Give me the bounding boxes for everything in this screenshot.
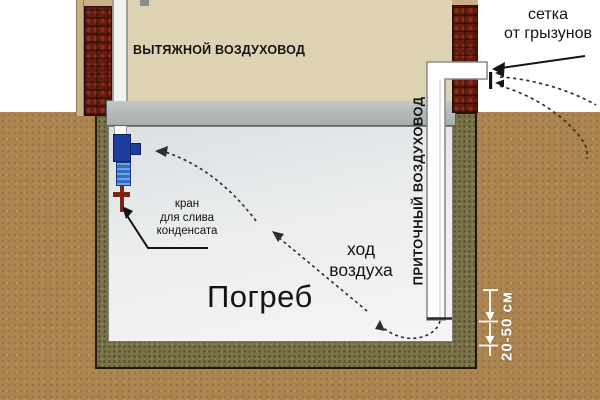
cellar-label: Погреб — [207, 279, 313, 315]
air-flow-label-line2: воздуха — [322, 260, 400, 281]
inside-airflow-arrowhead-mid — [272, 231, 284, 242]
cellar-ventilation-diagram: ВЫТЯЖНОЙ ВОЗДУХОВОД ПРИТОЧНЫЙ ВОЗДУХОВОД… — [0, 0, 600, 400]
tap-label-arrowhead — [122, 206, 133, 219]
rodent-mesh — [489, 72, 492, 89]
mesh-label-arrow-line — [501, 56, 585, 68]
supply-pipe — [427, 62, 487, 320]
air-flow-label: ход воздуха — [322, 239, 400, 281]
air-flow-label-line1: ход — [322, 239, 400, 260]
dimension-label: 20-50 см — [499, 291, 516, 361]
inside-airflow-arrowhead-top — [155, 146, 168, 157]
inside-airflow-arrowhead-bottom — [375, 320, 385, 331]
dimension-marker — [479, 290, 498, 356]
condensate-tap-label-line1: кран — [147, 198, 227, 212]
exhaust-duct-label: ВЫТЯЖНОЙ ВОЗДУХОВОД — [133, 43, 305, 57]
rodent-mesh-label-line1: сетка — [500, 5, 596, 24]
rodent-mesh-label-line2: от грызунов — [500, 24, 596, 43]
outside-airflow-arrowhead-2 — [495, 80, 504, 88]
condensate-tap-label-line2: для слива — [147, 212, 227, 226]
condensate-tap-label-line3: конденсата — [147, 225, 227, 239]
supply-duct-label: ПРИТОЧНЫЙ ВОЗДУХОВОД — [411, 97, 426, 286]
outside-airflow-dash-2 — [500, 86, 587, 159]
condensate-tap-label: кран для слива конденсата — [147, 198, 227, 239]
inside-airflow-curve-bottom — [382, 321, 440, 338]
rodent-mesh-label: сетка от грызунов — [500, 5, 596, 43]
